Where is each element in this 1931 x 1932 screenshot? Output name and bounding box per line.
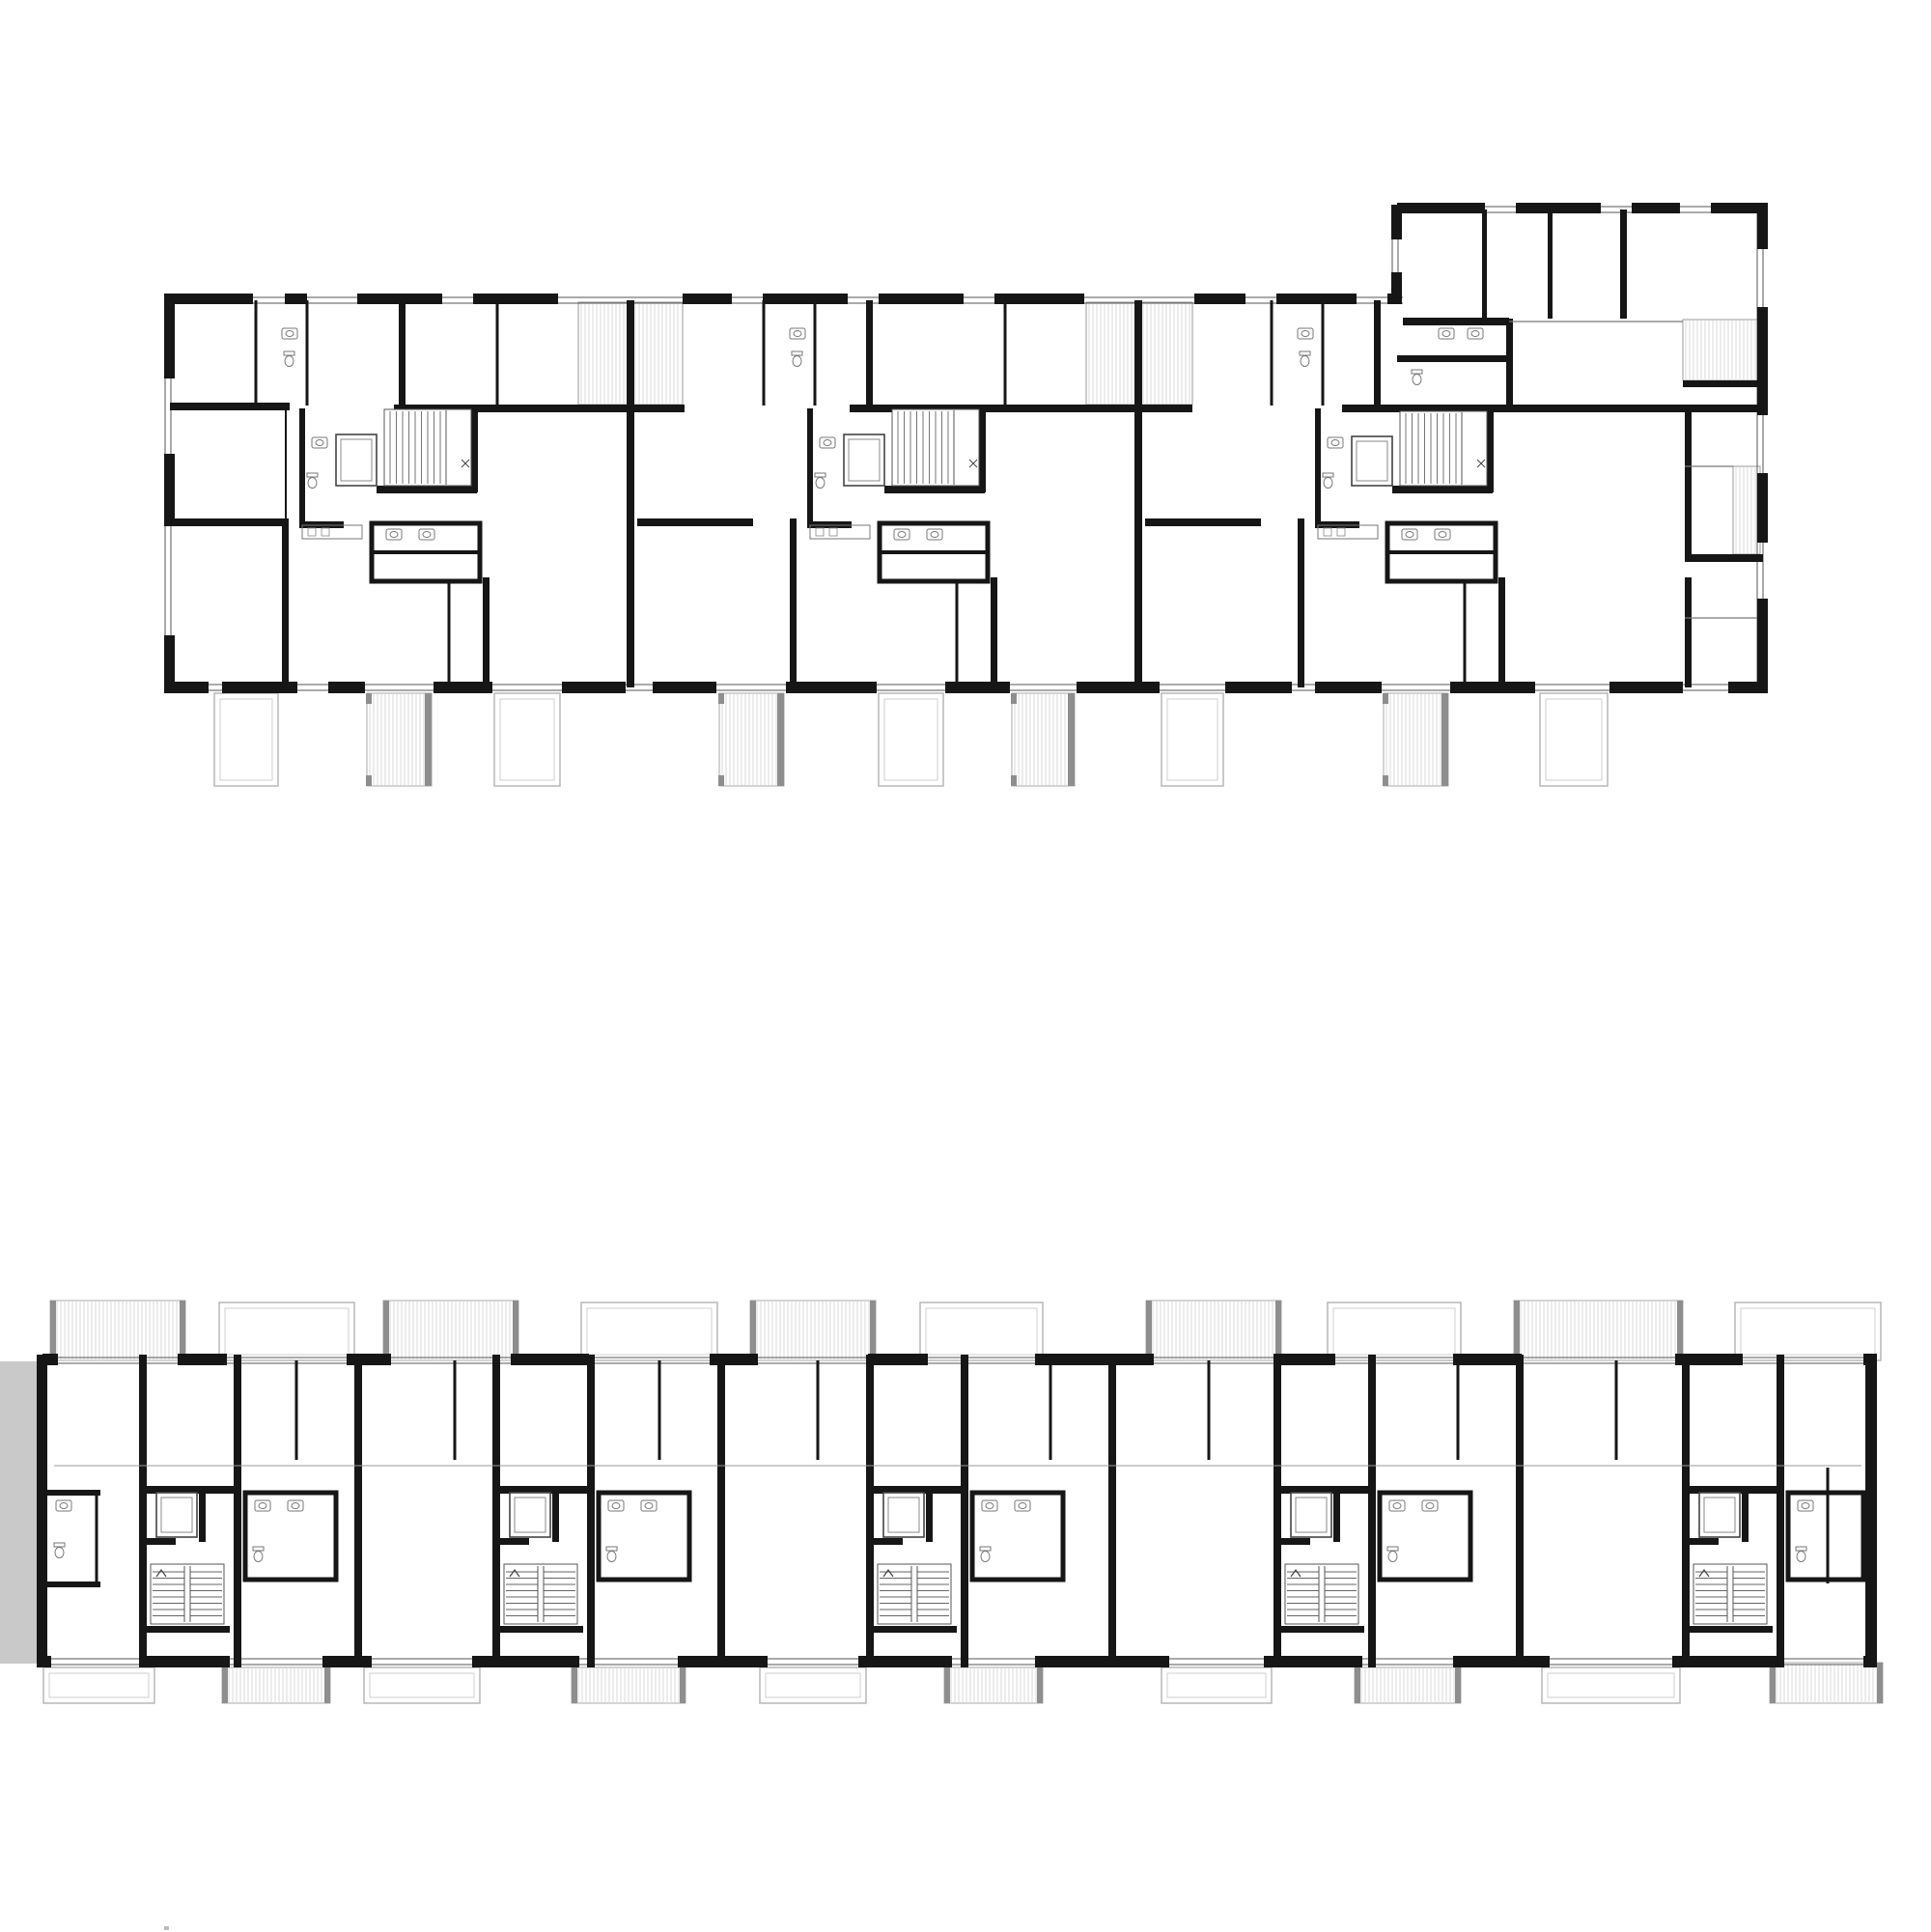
wall-segment [399, 300, 406, 406]
wall-segment [1516, 1355, 1524, 1667]
sink-outline [1468, 328, 1483, 339]
balcony-rail [1037, 1667, 1043, 1703]
wc-fixture [1412, 370, 1422, 385]
wall-segment [868, 1354, 928, 1365]
wc-fixture [980, 1547, 991, 1562]
wall-segment [1683, 380, 1757, 387]
wall-segment [472, 1656, 579, 1667]
stair-rail-gap [1727, 1566, 1733, 1622]
balcony-inner-outline [220, 699, 272, 780]
sink-fixture [927, 529, 942, 540]
wall-segment [763, 294, 848, 304]
sink-outline [608, 1500, 624, 1511]
wc-tank [253, 1547, 264, 1551]
wall-segment [1077, 682, 1160, 693]
wall-segment [234, 1355, 241, 1667]
wall-segment [511, 1354, 589, 1365]
staircase [384, 409, 471, 486]
balcony-rail [1275, 1301, 1281, 1360]
sink-fixture [56, 1500, 71, 1511]
sink-basin [898, 532, 906, 538]
wall-segment [282, 518, 289, 687]
balcony-post [1011, 775, 1017, 786]
wc-bowl [1388, 1552, 1397, 1562]
wall-segment [653, 682, 716, 693]
wall-segment [1690, 1538, 1719, 1545]
sink-fixture [790, 328, 805, 339]
kitchen-hob [1324, 528, 1331, 536]
balcony-plain [1328, 1302, 1461, 1360]
balcony-plain [43, 1667, 154, 1703]
wc-fixture [1300, 351, 1310, 367]
balcony-hatched [750, 1301, 876, 1360]
sink-fixture [288, 1500, 303, 1511]
wc-bowl [308, 478, 317, 489]
wall-segment [1632, 203, 1680, 213]
balcony-plain [879, 693, 943, 786]
sink-fixture [1435, 529, 1450, 540]
sink-fixture [1468, 328, 1483, 339]
elevator-shaft [336, 434, 377, 486]
wall-segment [710, 1354, 758, 1365]
balcony-rail [1514, 1301, 1520, 1360]
balcony-rail [324, 1667, 330, 1703]
balcony-plain [1735, 1302, 1881, 1360]
wall-segment [1777, 1355, 1784, 1667]
balcony-rail [1441, 693, 1448, 786]
wc-tank [1387, 1547, 1398, 1551]
balcony-post [366, 775, 372, 786]
sink-fixture [1298, 328, 1313, 339]
balcony-plain [219, 1302, 354, 1360]
wall-segment [870, 1626, 957, 1633]
wall-segment [500, 1538, 529, 1545]
wall-segment [492, 1355, 500, 1667]
wall-segment [1035, 1656, 1169, 1667]
sink-basin [60, 1503, 68, 1509]
wc-tank [980, 1547, 991, 1551]
balcony-hatched [366, 693, 432, 786]
balcony-rail [222, 1667, 228, 1703]
wall-segment [1487, 408, 1494, 492]
sink-fixture [1328, 437, 1343, 448]
wall-segment [1757, 205, 1768, 249]
balcony-outline [219, 1302, 354, 1360]
wall-segment [1333, 1492, 1340, 1542]
balcony-rail [572, 1667, 577, 1703]
sink-outline [1328, 437, 1343, 448]
sink-outline [894, 529, 910, 540]
stair-rail-gap [911, 1566, 917, 1622]
sink-outline [1422, 1500, 1438, 1511]
wall-segment [285, 294, 307, 304]
wall-segment [164, 294, 253, 304]
wc-tank [307, 473, 318, 477]
wall-segment [199, 1492, 206, 1542]
balcony-rail [1068, 693, 1075, 786]
wc-bowl [285, 356, 294, 367]
balcony-border [367, 693, 432, 786]
sink-outline [386, 529, 402, 540]
elevator-shaft [844, 434, 884, 486]
sink-fixture [894, 529, 910, 540]
sink-fixture [1015, 1500, 1030, 1511]
wall-segment [1374, 300, 1381, 406]
wall-segment [164, 454, 175, 526]
balcony-outline [920, 1302, 1043, 1360]
wall-segment [786, 682, 877, 693]
wall-segment [1865, 1355, 1877, 1667]
sink-fixture [608, 1500, 624, 1511]
sink-basin [1439, 532, 1446, 538]
wall-segment [473, 294, 558, 304]
wall-segment [717, 1355, 725, 1667]
wall-segment [1685, 408, 1692, 558]
wall-segment [147, 1538, 176, 1545]
balcony-plain [1540, 693, 1608, 786]
wc-bowl [1301, 356, 1309, 367]
balcony-post [718, 693, 724, 704]
balcony-hatched [1355, 1667, 1461, 1703]
sink-outline [982, 1500, 997, 1511]
balcony-inner-outline [1167, 699, 1217, 780]
wc-tank [1323, 473, 1333, 477]
elevator [1352, 436, 1392, 486]
sink-basin [1331, 440, 1339, 446]
balcony-hatched [944, 1667, 1043, 1703]
sink-fixture [1422, 1500, 1438, 1511]
wall-segment [347, 1354, 391, 1365]
wall-segment [164, 294, 175, 378]
wall-segment [328, 682, 365, 693]
balcony-plain [494, 693, 560, 786]
balcony-hatched [222, 1667, 330, 1703]
wall-segment [807, 408, 813, 526]
wc-bowl [1797, 1552, 1805, 1562]
sink-basin [645, 1503, 653, 1509]
sink-outline [282, 328, 297, 339]
wall-segment [1498, 577, 1505, 687]
balcony-plain [1161, 1667, 1272, 1703]
wall-segment [866, 1355, 874, 1667]
wall-segment [1277, 1626, 1364, 1633]
wc-bowl [1413, 375, 1421, 385]
upper-floor-plan [164, 203, 1768, 786]
wall-segment [1685, 577, 1692, 687]
balcony-outline [581, 1302, 717, 1360]
wall-segment [164, 635, 175, 693]
balcony-inner-outline [926, 1308, 1037, 1355]
wall-segment [1134, 300, 1142, 687]
wall-segment [874, 1538, 903, 1545]
balcony-rail [1677, 1301, 1683, 1360]
staircase [1285, 1564, 1358, 1624]
sheet-mark [164, 1926, 169, 1930]
wall-segment [139, 1355, 147, 1667]
wall-segment [562, 682, 626, 693]
balcony-inner-outline [1548, 1673, 1674, 1697]
kitchen-hob [308, 528, 316, 536]
wall-segment [1506, 319, 1513, 408]
sink-outline [820, 437, 835, 448]
wall-segment [1315, 408, 1321, 526]
wall-segment [552, 1492, 559, 1542]
wc-bowl [793, 356, 801, 367]
terrace-gray-slab [0, 1361, 37, 1664]
wall-segment [790, 518, 797, 687]
wall-segment [143, 1626, 230, 1633]
wc-tank [792, 351, 802, 355]
sink-basin [259, 1503, 266, 1509]
balcony-rail [944, 1667, 950, 1703]
wall-segment [42, 1582, 100, 1587]
wc-tank [1796, 1547, 1806, 1551]
wall-segment [1482, 210, 1487, 319]
balcony-rail [1877, 1663, 1883, 1703]
balcony-hatched [383, 1301, 518, 1360]
wall-segment [37, 1355, 47, 1667]
wall-segment [178, 1354, 227, 1365]
wall-segment [879, 294, 964, 304]
staircase [1693, 1564, 1767, 1624]
balcony-plain [920, 1302, 1043, 1360]
wall-segment [1450, 682, 1535, 693]
wall-segment [42, 1490, 100, 1496]
loggia-hatch [1683, 320, 1757, 380]
wc-fixture [253, 1547, 264, 1562]
sink-fixture [386, 529, 402, 540]
wall-segment [926, 1492, 933, 1542]
wall-segment [961, 1355, 968, 1667]
balcony-rail [777, 693, 784, 786]
sink-outline [1402, 529, 1417, 540]
sink-outline [641, 1500, 657, 1511]
sink-fixture [1402, 529, 1417, 540]
balcony-hatched [1383, 693, 1448, 786]
sink-outline [419, 529, 434, 540]
sink-basin [1471, 331, 1479, 337]
wc-bowl [254, 1552, 263, 1562]
wall-segment [1609, 682, 1683, 693]
sink-outline [1798, 1500, 1813, 1511]
wall-segment [1368, 1355, 1376, 1667]
balcony-hatched [1770, 1663, 1883, 1703]
wall-segment [1548, 210, 1553, 319]
wall-segment [1757, 307, 1768, 415]
wall-segment [1757, 473, 1768, 543]
sink-fixture [1439, 328, 1454, 339]
balcony-rail [680, 1667, 686, 1703]
balcony-rail [1355, 1667, 1360, 1703]
wall-segment [1686, 1626, 1773, 1633]
wc-bowl [607, 1552, 616, 1562]
wc-fixture [815, 473, 826, 489]
balcony-post [366, 693, 372, 704]
wall-segment [991, 577, 997, 687]
wc-tank [284, 351, 294, 355]
balcony-rail [870, 1301, 876, 1360]
staircase [878, 1564, 951, 1624]
sink-fixture [1798, 1500, 1813, 1511]
wall-segment [979, 408, 986, 492]
elevator [156, 1493, 197, 1537]
balcony-outline [214, 693, 278, 786]
wc-fixture [54, 1543, 65, 1558]
balcony-plain [581, 1302, 717, 1360]
balcony-post [1383, 693, 1388, 704]
floor-plans-drawing [0, 0, 1931, 1932]
wc-bowl [55, 1548, 64, 1558]
wc-fixture [1796, 1547, 1806, 1562]
sink-basin [794, 331, 801, 337]
balcony-inner-outline [500, 699, 554, 780]
balcony-outline [1328, 1302, 1461, 1360]
balcony-outline [879, 693, 943, 786]
sink-basin [390, 532, 398, 538]
sink-outline [1298, 328, 1313, 339]
balcony-rail [383, 1301, 389, 1360]
wall-segment [471, 408, 478, 492]
kitchen-sink [829, 528, 837, 536]
sink-basin [1019, 1503, 1026, 1509]
elevator [883, 1493, 924, 1537]
wall-segment [683, 294, 732, 304]
balcony-outline [494, 693, 560, 786]
sink-outline [1435, 529, 1450, 540]
wc-tank [815, 473, 826, 477]
wall-segment [1273, 1355, 1281, 1667]
elevator [510, 1493, 550, 1537]
balcony-inner-outline [766, 1673, 860, 1697]
wall-segment [1391, 205, 1402, 239]
sink-basin [292, 1503, 299, 1509]
sink-basin [931, 532, 938, 538]
balcony-inner-outline [1333, 1308, 1455, 1355]
balcony-plain [364, 1667, 480, 1703]
wall-segment [1273, 1354, 1335, 1365]
sink-basin [1301, 331, 1309, 337]
wall-segment [1298, 518, 1304, 687]
stair-rail-gap [1319, 1566, 1325, 1622]
elevator-shaft [156, 1493, 197, 1537]
wall-segment [1757, 599, 1768, 693]
wc-bowl [1324, 478, 1332, 489]
kitchen-sink [1337, 528, 1345, 536]
wall-segment [1035, 1354, 1154, 1365]
wall-segment [1397, 355, 1506, 362]
balcony-plain [214, 693, 278, 786]
sink-fixture [1389, 1500, 1405, 1511]
sink-outline [312, 437, 327, 448]
sink-basin [824, 440, 831, 446]
wc-fixture [284, 351, 294, 367]
balcony-inner-outline [1546, 699, 1602, 780]
staircase [151, 1564, 224, 1624]
balcony-inner-outline [370, 1673, 474, 1697]
balcony-rail [750, 1301, 756, 1360]
loggia-hatch [1733, 466, 1760, 554]
sink-basin [1802, 1503, 1809, 1509]
wall-segment [1403, 318, 1509, 325]
sink-fixture [312, 437, 327, 448]
balcony-hatched [1514, 1301, 1683, 1360]
sink-basin [1442, 331, 1450, 337]
stair-landing [1462, 412, 1486, 485]
sink-basin [612, 1503, 620, 1509]
wall-segment [496, 1626, 583, 1633]
sink-basin [423, 532, 431, 538]
wall-segment [945, 682, 1010, 693]
wc-fixture [606, 1547, 617, 1562]
wc-bowl [816, 478, 825, 489]
wall-segment [627, 300, 634, 687]
wall-segment [1742, 1492, 1749, 1542]
wall-segment [1453, 1656, 1550, 1667]
balcony-inner-outline [587, 1308, 712, 1355]
sink-basin [986, 1503, 993, 1509]
staircase [504, 1564, 577, 1624]
elevator [1291, 1493, 1331, 1537]
wall-segment [170, 403, 290, 410]
wall-segment [884, 486, 985, 493]
balcony-inner-outline [225, 1308, 349, 1355]
sink-outline [56, 1500, 71, 1511]
balcony-rail [1770, 1663, 1776, 1703]
wall-segment [354, 1355, 362, 1667]
sink-outline [927, 529, 942, 540]
wall-segment [1391, 272, 1402, 300]
wc-tank [1300, 351, 1310, 355]
elevator [336, 434, 377, 486]
lower-floor-plan [0, 1301, 1883, 1930]
sink-fixture [282, 328, 297, 339]
balcony-post [1011, 693, 1017, 704]
sink-outline [288, 1500, 303, 1511]
sink-fixture [255, 1500, 270, 1511]
sink-outline [1389, 1500, 1405, 1511]
sink-basin [1393, 1503, 1401, 1509]
wall-segment [1281, 1538, 1310, 1545]
wall-segment [1276, 294, 1357, 304]
staircase [1400, 411, 1487, 486]
wc-fixture [1387, 1547, 1398, 1562]
wall-segment [1516, 203, 1601, 213]
wall-segment [1315, 682, 1382, 693]
elevator-shaft [1291, 1493, 1331, 1537]
balcony-rail [1455, 1667, 1461, 1703]
balcony-inner-outline [884, 699, 938, 780]
kitchen-sink [322, 528, 329, 536]
sink-basin [286, 331, 294, 337]
wall-segment [1194, 294, 1245, 304]
loggia-border [1733, 466, 1760, 554]
wall-segment [994, 294, 1084, 304]
elevator-shaft [510, 1493, 550, 1537]
balcony-rail [50, 1301, 56, 1360]
wall-segment [1682, 1355, 1690, 1667]
balcony-hatched [50, 1301, 185, 1360]
staircase [892, 409, 979, 486]
wall-segment [377, 486, 477, 493]
wall-segment [147, 1656, 230, 1667]
elevator [844, 434, 884, 486]
wall-segment [1225, 682, 1292, 693]
balcony-hatched [572, 1667, 686, 1703]
wall-segment [1145, 518, 1261, 526]
balcony-inner-outline [1741, 1308, 1875, 1355]
balcony-border [1384, 693, 1448, 786]
sink-outline [790, 328, 805, 339]
